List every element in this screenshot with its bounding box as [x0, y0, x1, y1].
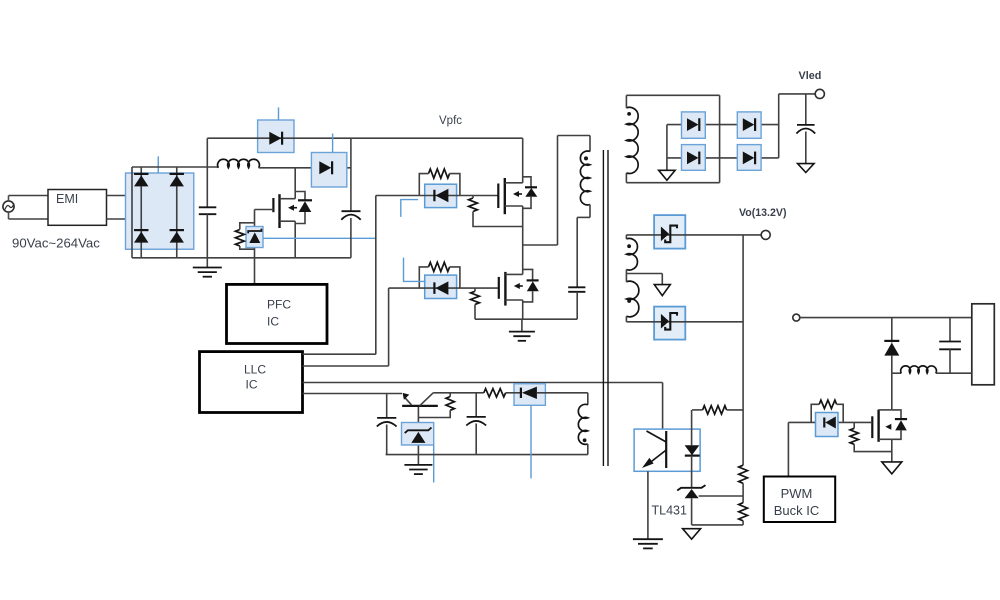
- svg-text:Vpfc: Vpfc: [439, 115, 462, 127]
- svg-text:EMI: EMI: [56, 192, 78, 206]
- svg-text:Buck IC: Buck IC: [774, 503, 820, 518]
- svg-text:IC: IC: [246, 377, 258, 391]
- svg-text:IC: IC: [267, 314, 279, 328]
- svg-text:LLC: LLC: [244, 362, 266, 376]
- svg-text:PWM: PWM: [781, 486, 813, 501]
- svg-text:Vo(13.2V): Vo(13.2V): [739, 207, 787, 219]
- svg-text:90Vac~264Vac: 90Vac~264Vac: [12, 236, 100, 251]
- svg-text:Vled: Vled: [799, 70, 822, 82]
- svg-text:PFC: PFC: [267, 298, 291, 312]
- svg-text:TL431: TL431: [652, 504, 687, 518]
